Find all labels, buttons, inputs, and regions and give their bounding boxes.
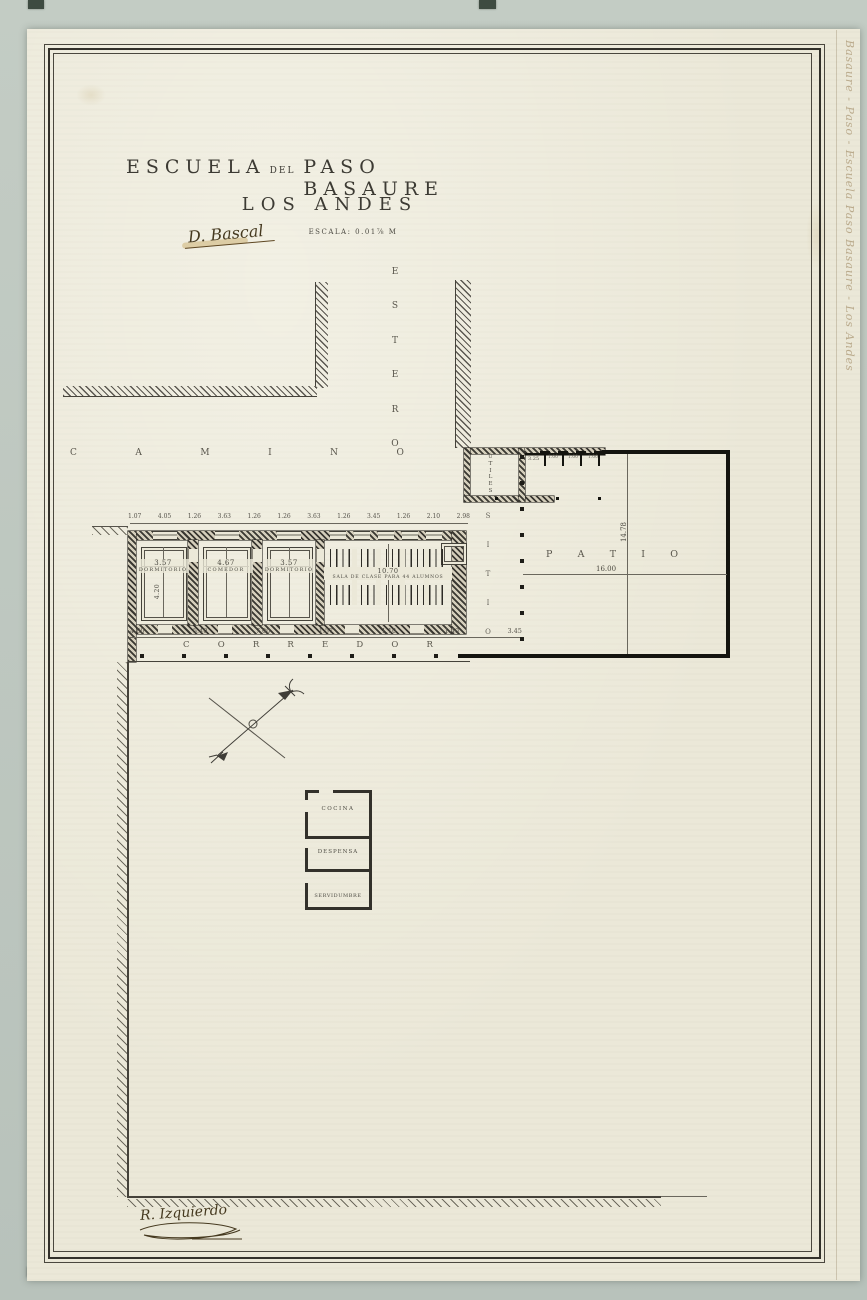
kitchen-wall-left-b [305, 812, 308, 838]
dim-line-vertical [226, 547, 227, 617]
dimension-value: 1.10 [382, 627, 396, 635]
latrine-post-cap [540, 451, 550, 454]
room-name: SALA DE CLASE PARA 44 ALUMNOS [324, 575, 452, 580]
road-fence-stub [92, 526, 128, 535]
dimension-value: 3.45 [367, 513, 380, 521]
post-dot [598, 497, 601, 500]
letter: T [489, 461, 493, 467]
kitchen-wall-left-a [305, 790, 308, 800]
window [153, 531, 177, 540]
room-name: DORMITORIO [137, 567, 189, 573]
utiles-wall-bottom [464, 496, 554, 502]
door-partition-3 [316, 549, 324, 562]
patio-wall-top [602, 450, 730, 454]
latrine-post-cap [576, 451, 586, 454]
letter: S [392, 301, 398, 311]
latrine-post-cap [558, 451, 568, 454]
dimension-value: 1.00 [588, 455, 598, 460]
kitchen-wall-bottom [305, 907, 372, 910]
letter: I [641, 549, 645, 560]
room-width-dim: 10.70 [324, 567, 452, 575]
dimension-value: 1.26 [188, 513, 201, 521]
dimension-value: 4.05 [158, 513, 171, 521]
room-name: DORMITORIO [263, 567, 315, 573]
dimension-value: 1.07 [128, 513, 141, 521]
corridor-label: CORREDOR [183, 640, 433, 650]
room-width-dim: 3.57 [263, 559, 315, 567]
road-label-camino: CAMINO [70, 448, 404, 458]
window [277, 531, 301, 540]
letter: I [487, 541, 490, 549]
utiles-label: ÚTILES [486, 454, 495, 494]
latrine-dim-label: 3.25 [528, 456, 539, 462]
border-frame-inner [53, 53, 812, 1252]
patio-fence-posts [520, 455, 524, 653]
door-partition-1 [188, 549, 198, 562]
latrine-post [562, 453, 564, 466]
window [354, 531, 370, 540]
letter: R [253, 640, 259, 650]
boundary-wall-right [455, 280, 471, 448]
letter: O [218, 640, 225, 650]
letter: T [610, 549, 616, 560]
scale-note: ESCALA: 0.01⅞ M [298, 228, 408, 236]
letter: D [356, 640, 363, 650]
dimension-value: 1.26 [248, 513, 261, 521]
letter: S [486, 512, 491, 520]
post-dot [556, 497, 559, 500]
latrine-post [580, 453, 582, 466]
top-dimension-chain: 1.074.051.263.631.261.263.631.263.451.26… [128, 513, 470, 521]
dim-line-vertical [289, 547, 290, 617]
kitchen-wall-top-b [333, 790, 372, 793]
yard-label-sitio: SITIO [483, 512, 493, 636]
letter: T [486, 570, 491, 578]
letter: R [427, 640, 433, 650]
dimension-value: 1.40 [445, 627, 459, 635]
title-word-escuela: ESCUELA [126, 156, 266, 178]
mat-clip-top-center [479, 0, 496, 9]
dimension-value: 1.57 [319, 627, 333, 635]
letter: O [391, 439, 398, 449]
room-label-dormitorio-2: 3.57 DORMITORIO [263, 559, 315, 573]
letter: I [487, 599, 490, 607]
title-word-del: DEL [270, 166, 296, 176]
kitchen-partition-1 [305, 836, 372, 839]
utiles-wall-left [464, 448, 470, 502]
letter: S [489, 488, 493, 494]
stream-label-estero: ESTERO [389, 267, 401, 449]
letter: O [391, 640, 398, 650]
dimension-value: 2.10 [427, 513, 440, 521]
latrine-post [598, 453, 600, 466]
letter: E [392, 370, 399, 380]
lot-boundary-bottom [127, 1196, 661, 1198]
boundary-wall-horizontal [63, 386, 317, 397]
letter: I [489, 468, 491, 474]
room-depth-dim: 4.20 [154, 584, 161, 599]
dimension-value: 3.63 [218, 513, 231, 521]
letter: I [268, 448, 272, 458]
dimension-value: 3.63 [307, 513, 320, 521]
dimension-value: 1.26 [397, 513, 410, 521]
letter: C [183, 640, 190, 650]
letter: O [397, 448, 404, 458]
window [426, 531, 442, 540]
patio-depth-dim: 14.78 [620, 522, 628, 542]
room-label-sala-de-clase: 10.70 SALA DE CLASE PARA 44 ALUMNOS [324, 567, 452, 580]
room-name: COMEDOR [199, 567, 253, 573]
kitchen-room-label-cocina: COCINA [306, 806, 370, 812]
room-label-comedor: 4.67 COMEDOR [199, 559, 253, 573]
letter: N [330, 448, 338, 458]
corridor-posts [140, 654, 440, 658]
window [378, 531, 394, 540]
patio-width-dim: 16.00 [594, 565, 618, 573]
dimension-value: 7.00 [256, 627, 270, 635]
bottom-dimension-line [130, 637, 520, 638]
kitchen-room-label-despensa: DESPENSA [306, 849, 370, 855]
dimension-value: 5.40 [193, 627, 207, 635]
corridor-edge-line [128, 661, 470, 662]
letter: L [489, 474, 493, 480]
letter: P [546, 549, 552, 560]
letter: E [488, 481, 492, 487]
dimension-value: 1.26 [277, 513, 290, 521]
dimension-value: 1.26 [337, 513, 350, 521]
compass-north-arrow [203, 678, 308, 766]
letter: R [392, 405, 399, 415]
window [402, 531, 418, 540]
margin-handwriting: Basaure - Paso - Escuela Paso Basaure - … [843, 40, 856, 480]
patio-wall-bottom [458, 654, 730, 658]
room-label-dormitorio-1: 3.57 DORMITORIO [137, 559, 189, 573]
lot-boundary-extension [661, 1196, 707, 1197]
letter: E [322, 640, 328, 650]
latrine-bay-dims: 1.001.001.00 [548, 455, 598, 460]
building-wall-left [128, 531, 136, 662]
kitchen-partition-2 [305, 869, 372, 872]
boundary-wall-vertical [315, 282, 328, 388]
post-dot [495, 497, 498, 500]
lot-boundary-left-hatch [117, 662, 127, 1197]
letter: Ú [488, 454, 493, 460]
mat-clip-top-left [28, 0, 44, 9]
kitchen-room-label-servidumbre: SERVIDUMBRE [306, 893, 370, 899]
room-width-dim: 4.67 [199, 559, 253, 567]
letter: E [392, 267, 399, 277]
patio-dim-line-horizontal [523, 574, 727, 575]
door-partition-2 [252, 549, 262, 562]
letter: C [70, 448, 77, 458]
letter: T [392, 336, 398, 346]
lot-boundary-left [127, 662, 129, 1197]
window [215, 531, 239, 540]
fold-crease [836, 30, 837, 1280]
window [330, 531, 346, 540]
title-line2: LOS ANDES [240, 194, 420, 215]
letter: O [670, 549, 678, 560]
letter: A [135, 448, 142, 458]
patio-label: PATIO [546, 549, 678, 560]
letter: R [287, 640, 293, 650]
room-width-dim: 3.57 [137, 559, 189, 567]
letter: A [578, 549, 585, 560]
letter: M [200, 448, 209, 458]
bottom-dimension-chain: 4.805.407.001.571.101.403.45 [130, 627, 522, 635]
dimension-value: 1.00 [568, 455, 578, 460]
patio-wall-right [726, 450, 730, 658]
signature-flourish [134, 1218, 246, 1244]
dimension-value: 4.80 [130, 627, 144, 635]
top-dimension-line [130, 523, 468, 524]
dimension-value: 1.00 [548, 455, 558, 460]
dimension-value: 2.98 [457, 513, 470, 521]
latrine-post [544, 453, 546, 466]
dim-line-vertical [163, 547, 164, 617]
